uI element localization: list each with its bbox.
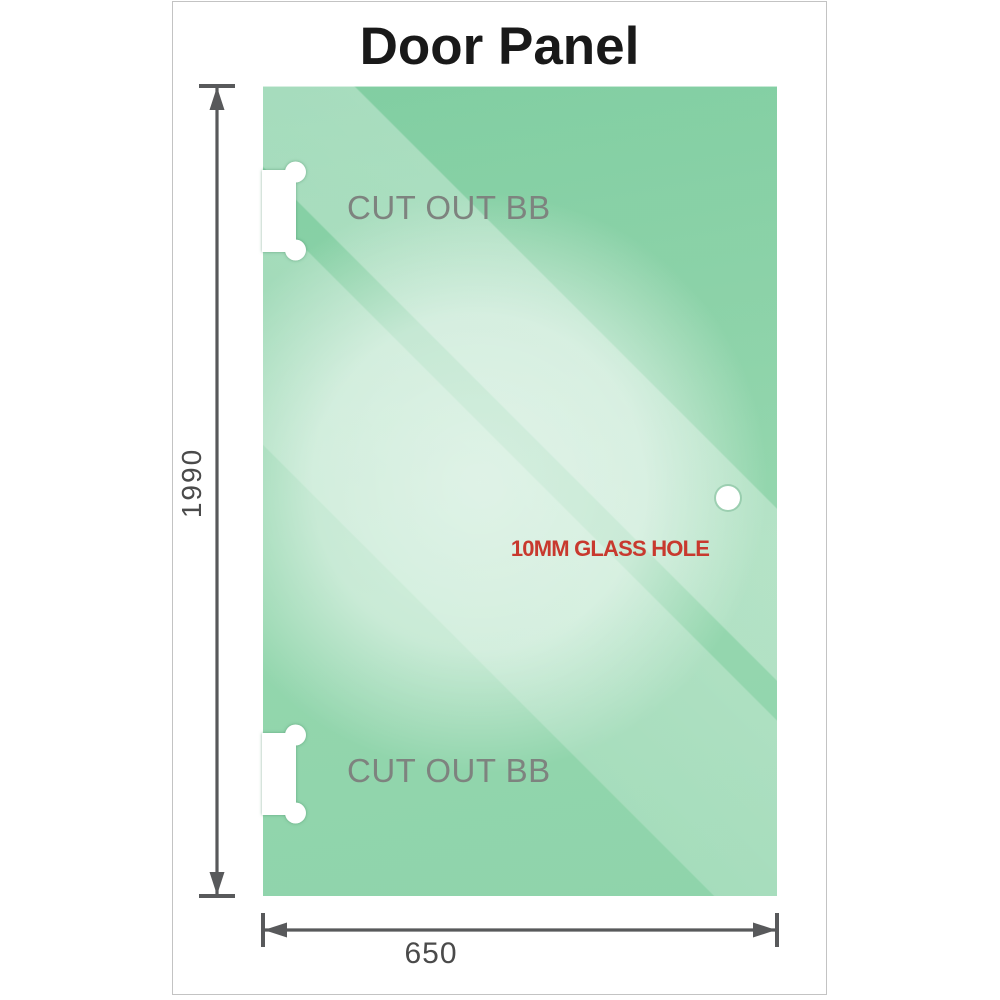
height-dimension-value: 1990 bbox=[176, 448, 208, 518]
glass-panel: CUT OUT BB CUT OUT BB 10MM GLASS HOLE bbox=[263, 86, 777, 896]
glass-hole-label: 10MM GLASS HOLE bbox=[511, 536, 709, 562]
width-dimension-arrow-icon bbox=[260, 911, 780, 949]
hinge-cutout-top-icon bbox=[262, 160, 310, 270]
hinge-cutout-bottom-icon bbox=[262, 723, 310, 833]
page-title: Door Panel bbox=[172, 18, 827, 76]
width-dimension-value: 650 bbox=[404, 937, 457, 971]
cutout-top-label: CUT OUT BB bbox=[347, 189, 551, 227]
cutout-bottom-label: CUT OUT BB bbox=[347, 752, 551, 790]
diagram-stage: Door Panel CUT OUT BB CUT OUT BB 10MM GL… bbox=[0, 0, 1000, 1000]
glass-hole-icon bbox=[716, 486, 740, 510]
